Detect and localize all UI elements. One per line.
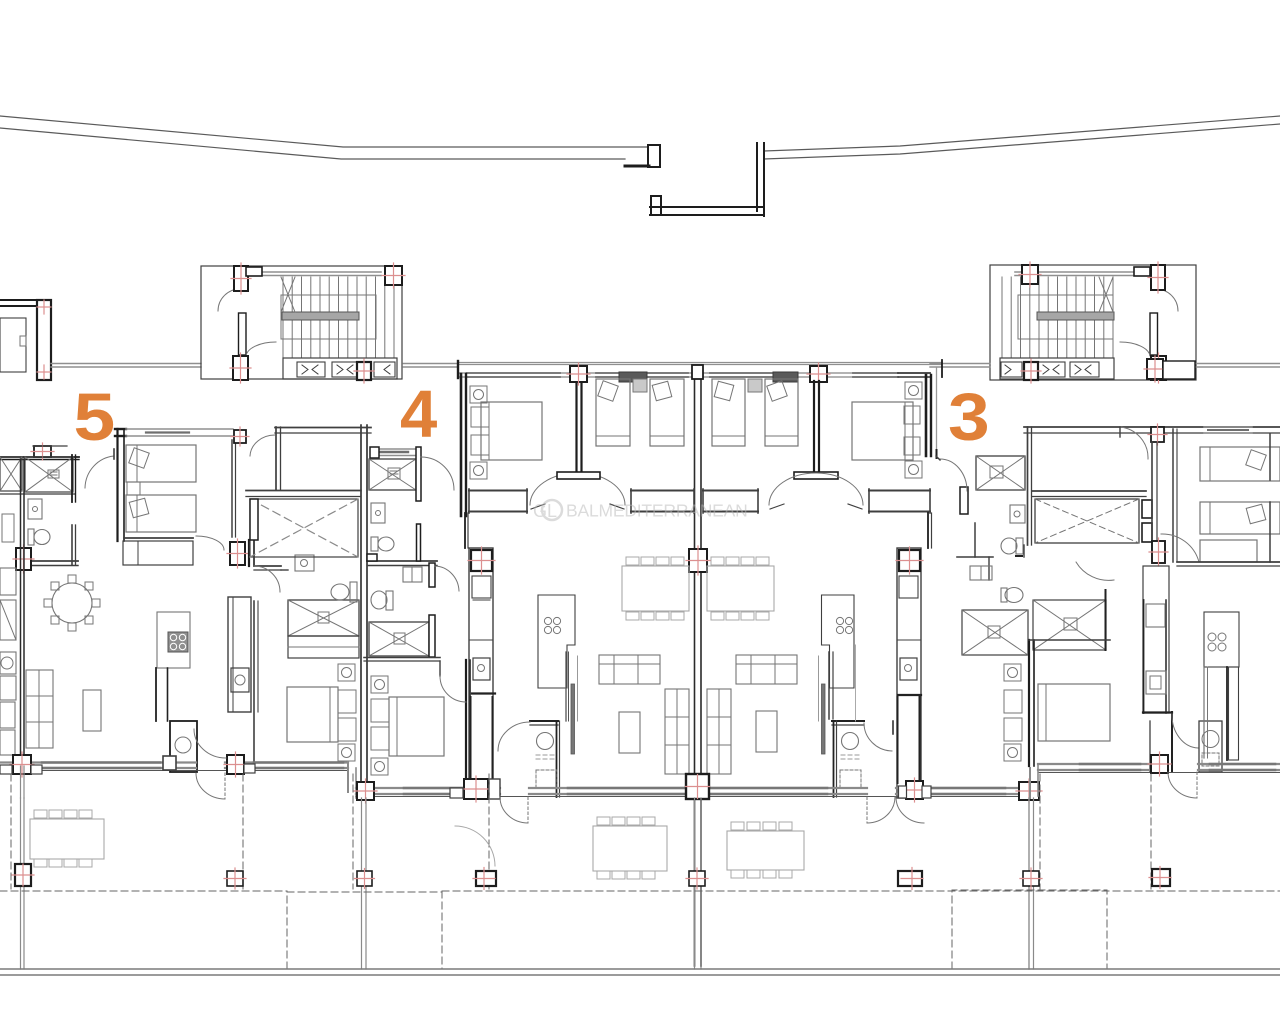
svg-text:BALMEDITERRANEAN: BALMEDITERRANEAN bbox=[566, 501, 748, 521]
svg-text:5: 5 bbox=[73, 381, 115, 455]
svg-text:3: 3 bbox=[948, 381, 990, 455]
svg-text:GL: GL bbox=[533, 501, 557, 521]
svg-text:4: 4 bbox=[400, 377, 437, 452]
